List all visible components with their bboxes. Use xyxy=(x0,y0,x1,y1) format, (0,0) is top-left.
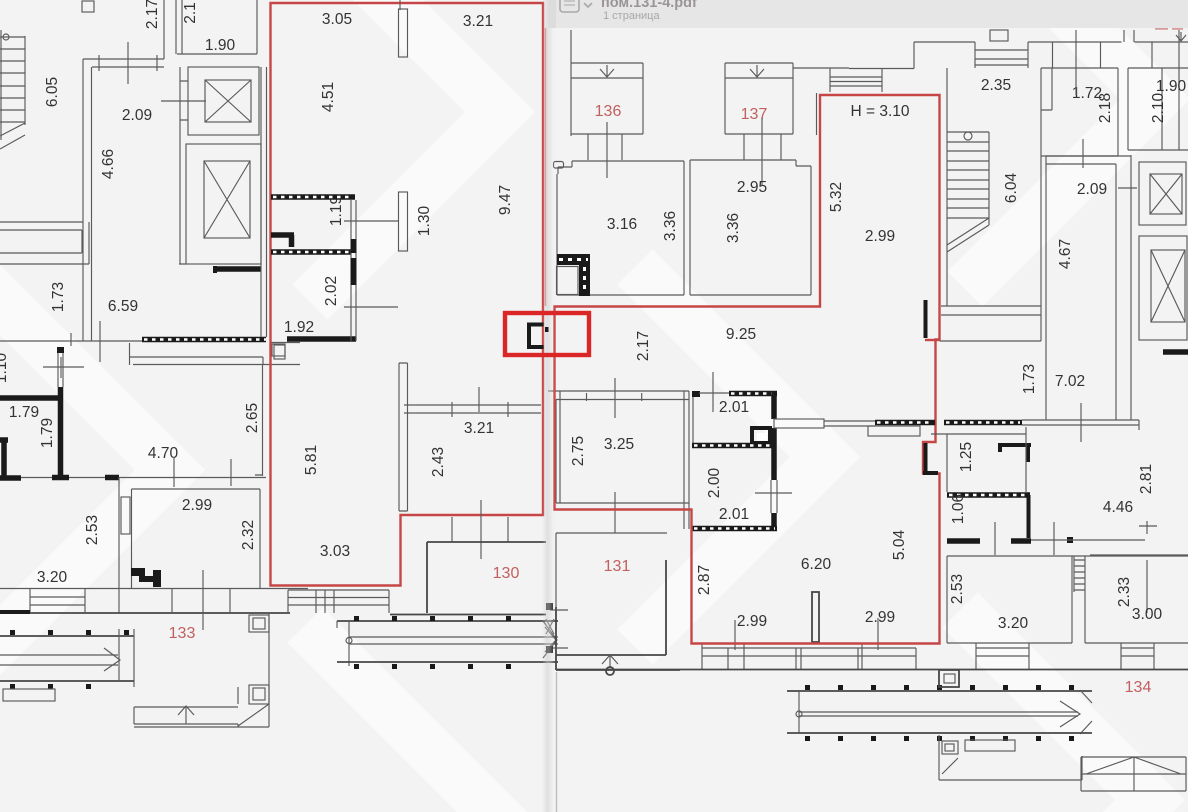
svg-text:2.09: 2.09 xyxy=(1077,181,1107,198)
svg-text:131: 131 xyxy=(604,558,631,575)
svg-text:1.90: 1.90 xyxy=(205,37,236,54)
svg-text:1.30: 1.30 xyxy=(416,206,433,237)
svg-text:2.95: 2.95 xyxy=(737,179,767,196)
svg-text:1.73: 1.73 xyxy=(50,282,67,312)
svg-text:2.00: 2.00 xyxy=(706,468,723,499)
svg-text:1.73: 1.73 xyxy=(1021,364,1038,394)
svg-text:1.19: 1.19 xyxy=(328,196,345,226)
svg-text:6.59: 6.59 xyxy=(108,298,138,315)
svg-text:133: 133 xyxy=(169,625,196,642)
svg-text:2.17: 2.17 xyxy=(635,331,652,361)
svg-text:3.25: 3.25 xyxy=(604,436,634,453)
svg-text:2.99: 2.99 xyxy=(182,497,212,514)
svg-text:9.25: 9.25 xyxy=(726,326,756,343)
svg-text:1.79: 1.79 xyxy=(9,404,39,421)
svg-text:2.53: 2.53 xyxy=(949,574,966,604)
svg-text:2.01: 2.01 xyxy=(719,506,749,523)
svg-text:2.32: 2.32 xyxy=(240,520,257,550)
svg-text:2.10: 2.10 xyxy=(1150,93,1167,124)
svg-text:2.99: 2.99 xyxy=(865,228,895,245)
svg-text:3.00: 3.00 xyxy=(1132,606,1163,623)
svg-text:3.21: 3.21 xyxy=(463,13,493,30)
svg-text:2.53: 2.53 xyxy=(84,515,101,545)
svg-text:2.01: 2.01 xyxy=(719,399,749,416)
svg-text:1.90: 1.90 xyxy=(1156,78,1187,95)
svg-text:4.46: 4.46 xyxy=(1103,499,1133,516)
svg-text:2.02: 2.02 xyxy=(323,276,340,306)
svg-text:134: 134 xyxy=(1125,679,1152,696)
svg-text:136: 136 xyxy=(595,103,622,120)
svg-text:2.43: 2.43 xyxy=(430,447,447,477)
svg-text:2.65: 2.65 xyxy=(244,403,261,433)
svg-text:6.04: 6.04 xyxy=(1003,173,1020,204)
svg-text:3.36: 3.36 xyxy=(725,213,742,243)
svg-text:3.36: 3.36 xyxy=(662,211,679,241)
svg-text:3.21: 3.21 xyxy=(464,420,494,437)
svg-text:3.03: 3.03 xyxy=(320,543,350,560)
svg-text:7.02: 7.02 xyxy=(1055,373,1085,390)
svg-text:3.05: 3.05 xyxy=(322,11,352,28)
svg-text:5.32: 5.32 xyxy=(828,182,845,212)
svg-text:1 страница: 1 страница xyxy=(603,10,660,22)
svg-text:3.20: 3.20 xyxy=(998,615,1029,632)
svg-text:5.81: 5.81 xyxy=(303,445,320,475)
svg-text:2.09: 2.09 xyxy=(122,107,152,124)
svg-text:2.1: 2.1 xyxy=(182,2,199,24)
svg-text:2.99: 2.99 xyxy=(865,609,895,626)
svg-text:2.17: 2.17 xyxy=(144,0,161,29)
svg-text:H = 3.10: H = 3.10 xyxy=(850,103,909,120)
svg-text:2.75: 2.75 xyxy=(570,436,587,466)
svg-text:1.92: 1.92 xyxy=(284,319,314,336)
svg-text:4.51: 4.51 xyxy=(320,82,337,112)
svg-text:6.05: 6.05 xyxy=(44,77,61,107)
svg-text:137: 137 xyxy=(741,106,768,123)
svg-text:1.10: 1.10 xyxy=(0,353,10,384)
svg-text:4.67: 4.67 xyxy=(1057,239,1074,269)
svg-text:3.20: 3.20 xyxy=(37,569,68,586)
svg-text:130: 130 xyxy=(493,565,520,582)
svg-text:4.66: 4.66 xyxy=(100,149,117,179)
svg-text:5.04: 5.04 xyxy=(891,530,908,561)
svg-text:6.20: 6.20 xyxy=(801,556,832,573)
svg-text:1.25: 1.25 xyxy=(958,442,975,472)
svg-text:2.35: 2.35 xyxy=(981,77,1011,94)
svg-text:2.99: 2.99 xyxy=(737,613,767,630)
svg-text:9.47: 9.47 xyxy=(497,185,514,215)
svg-text:2.87: 2.87 xyxy=(696,565,713,595)
svg-text:2.81: 2.81 xyxy=(1138,464,1155,494)
svg-text:3.16: 3.16 xyxy=(607,216,637,233)
svg-text:2.18: 2.18 xyxy=(1097,93,1114,123)
svg-text:1.79: 1.79 xyxy=(39,418,56,448)
svg-text:1.06: 1.06 xyxy=(950,494,967,524)
svg-text:2.33: 2.33 xyxy=(1116,577,1133,607)
